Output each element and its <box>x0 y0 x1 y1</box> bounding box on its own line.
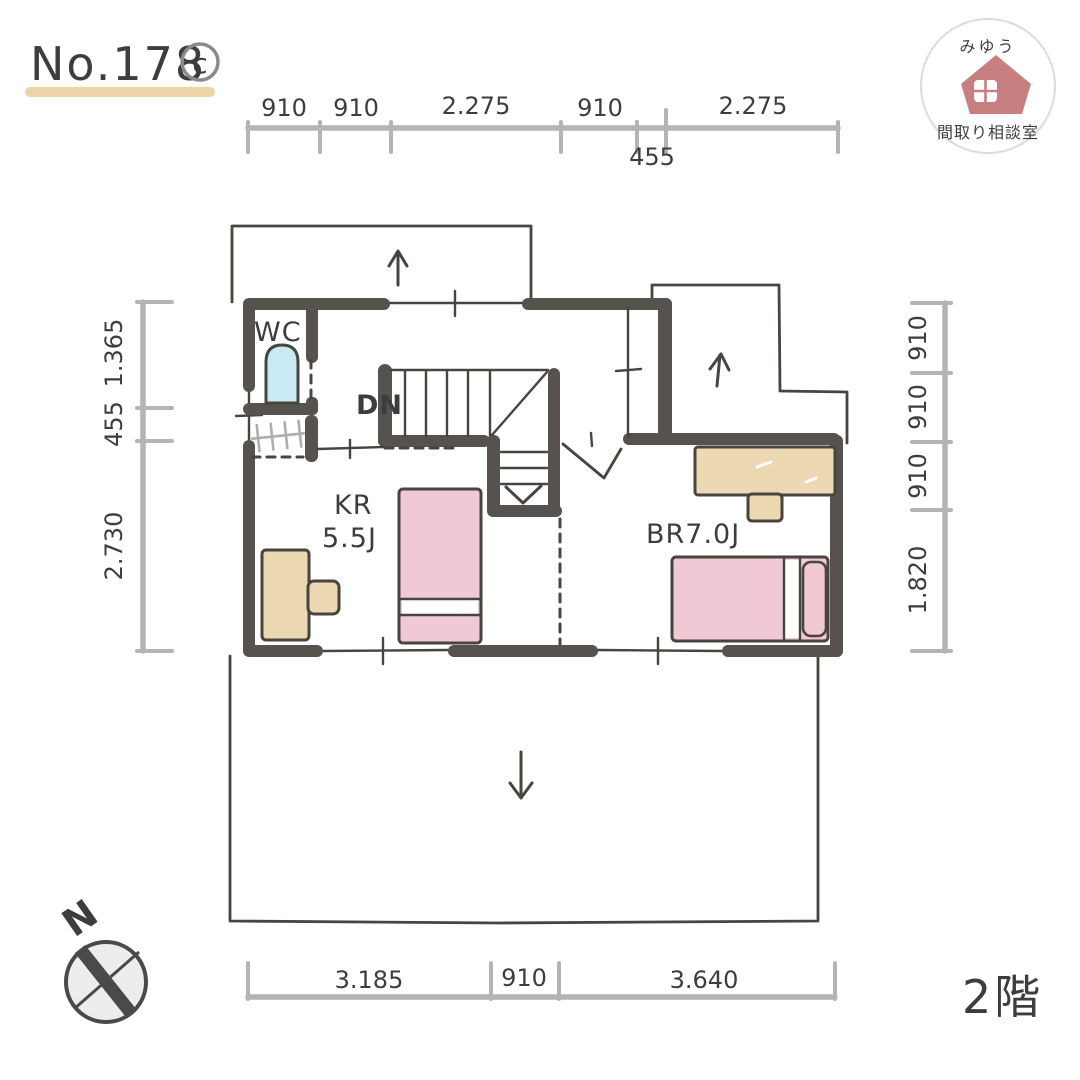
closet-shelf-hatch <box>251 420 305 451</box>
balcony-top-outline <box>232 226 531 302</box>
arrow-up-top <box>389 251 407 285</box>
toilet <box>266 345 298 403</box>
bed-pillow <box>803 562 826 636</box>
dimension-top: 910 910 2.275 910 2.275 455 <box>248 92 838 171</box>
bedroom-label: BR7.0J <box>646 519 740 550</box>
svg-text:910: 910 <box>501 964 547 992</box>
dimension-left: 1.365 455 2.730 <box>100 302 172 651</box>
svg-text:c: c <box>192 47 207 80</box>
svg-text:1.365: 1.365 <box>100 319 128 388</box>
hall-partition <box>591 308 641 446</box>
svg-text:910: 910 <box>261 94 307 122</box>
kids-room-chair <box>308 581 339 614</box>
svg-text:910: 910 <box>577 94 623 122</box>
svg-text:2.730: 2.730 <box>100 512 128 581</box>
arrow-down-roof <box>510 752 532 798</box>
svg-text:910: 910 <box>904 453 932 499</box>
svg-text:910: 910 <box>904 384 932 430</box>
compass-icon: N <box>54 891 146 1022</box>
logo-badge: みゆう 間取り相談室 <box>921 19 1055 153</box>
bedroom-desk <box>695 447 835 521</box>
svg-text:1.820: 1.820 <box>904 546 932 615</box>
dimension-bottom: 3.185 910 3.640 <box>248 963 835 999</box>
plan-title: No.178 c <box>25 37 218 97</box>
svg-text:3.185: 3.185 <box>335 966 404 994</box>
svg-text:3.640: 3.640 <box>670 966 739 994</box>
arrow-up-void <box>710 354 729 386</box>
bedroom-stool <box>748 494 782 521</box>
kids-room-desk <box>262 550 339 640</box>
void-right-outline <box>652 285 847 443</box>
kids-room-bed <box>399 489 481 643</box>
plan-number: No.178 <box>30 37 206 91</box>
wc-label: WC <box>254 317 302 348</box>
floor-plan-canvas: No.178 c みゆう 間取り相談室 910 910 2.275 910 2.… <box>0 0 1080 1080</box>
lower-roof-outline <box>230 656 818 923</box>
svg-text:910: 910 <box>333 94 379 122</box>
bedroom-door-swing <box>563 444 621 478</box>
kids-room-label-line2: 5.5J <box>322 523 377 554</box>
bedroom-bed <box>672 557 828 641</box>
svg-text:2.275: 2.275 <box>719 92 788 120</box>
logo-name-top: みゆう <box>959 37 1016 56</box>
svg-text:455: 455 <box>629 143 675 171</box>
stairs-down-arrow <box>506 486 541 503</box>
compass-north-label: N <box>54 891 105 945</box>
svg-text:2.275: 2.275 <box>442 92 511 120</box>
kids-room-label-line1: KR <box>334 490 372 521</box>
stairs-down-label: DN <box>356 390 403 421</box>
svg-text:910: 910 <box>904 315 932 361</box>
logo-name-bottom: 間取り相談室 <box>937 123 1039 142</box>
dimension-right: 910 910 910 1.820 <box>904 303 951 651</box>
floor-label: 2階 <box>962 970 1043 1024</box>
svg-text:455: 455 <box>100 401 128 447</box>
floor-plan-page: No.178 c みゆう 間取り相談室 910 910 2.275 910 2.… <box>0 0 1080 1080</box>
